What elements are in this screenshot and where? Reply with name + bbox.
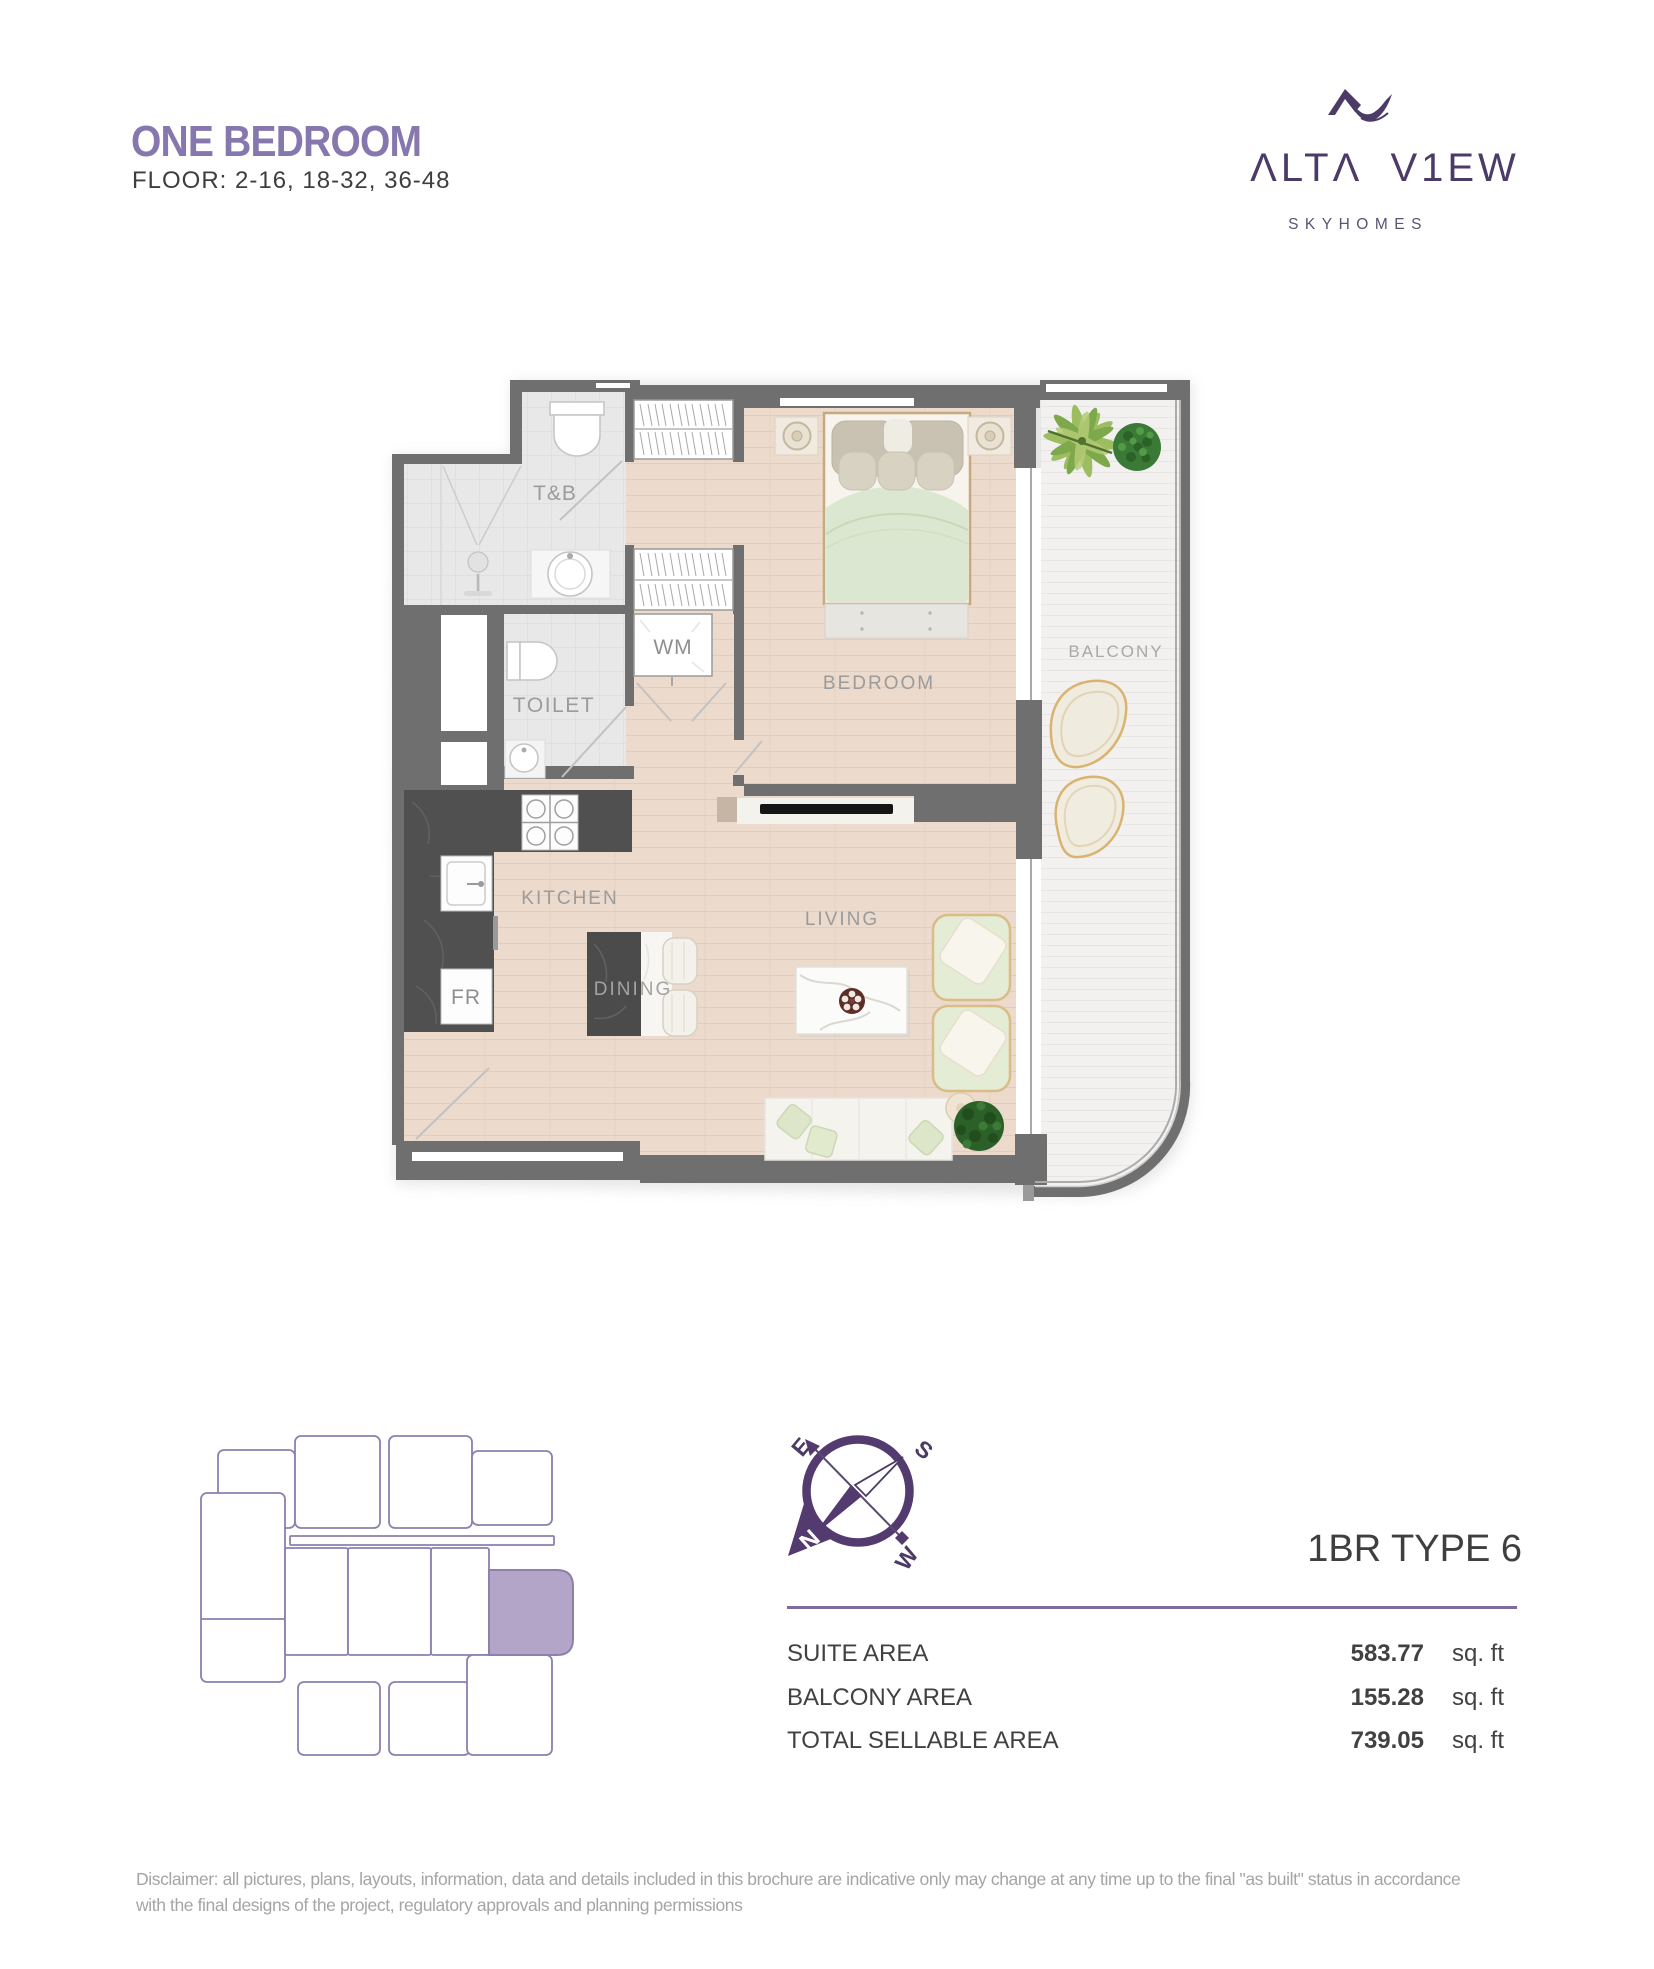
svg-text:DINING: DINING — [594, 979, 673, 1000]
svg-text:KITCHEN: KITCHEN — [521, 888, 618, 909]
svg-text:TOILET: TOILET — [513, 694, 595, 717]
svg-text:W: W — [890, 1542, 924, 1575]
svg-text:LIVING: LIVING — [805, 909, 879, 930]
svg-text:WM: WM — [653, 636, 692, 659]
svg-text:T&B: T&B — [533, 482, 577, 505]
svg-text:FR: FR — [451, 986, 481, 1009]
svg-text:BEDROOM: BEDROOM — [823, 673, 935, 694]
svg-text:BALCONY: BALCONY — [1068, 642, 1163, 661]
svg-text:E: E — [786, 1433, 816, 1461]
svg-text:S: S — [910, 1435, 938, 1465]
